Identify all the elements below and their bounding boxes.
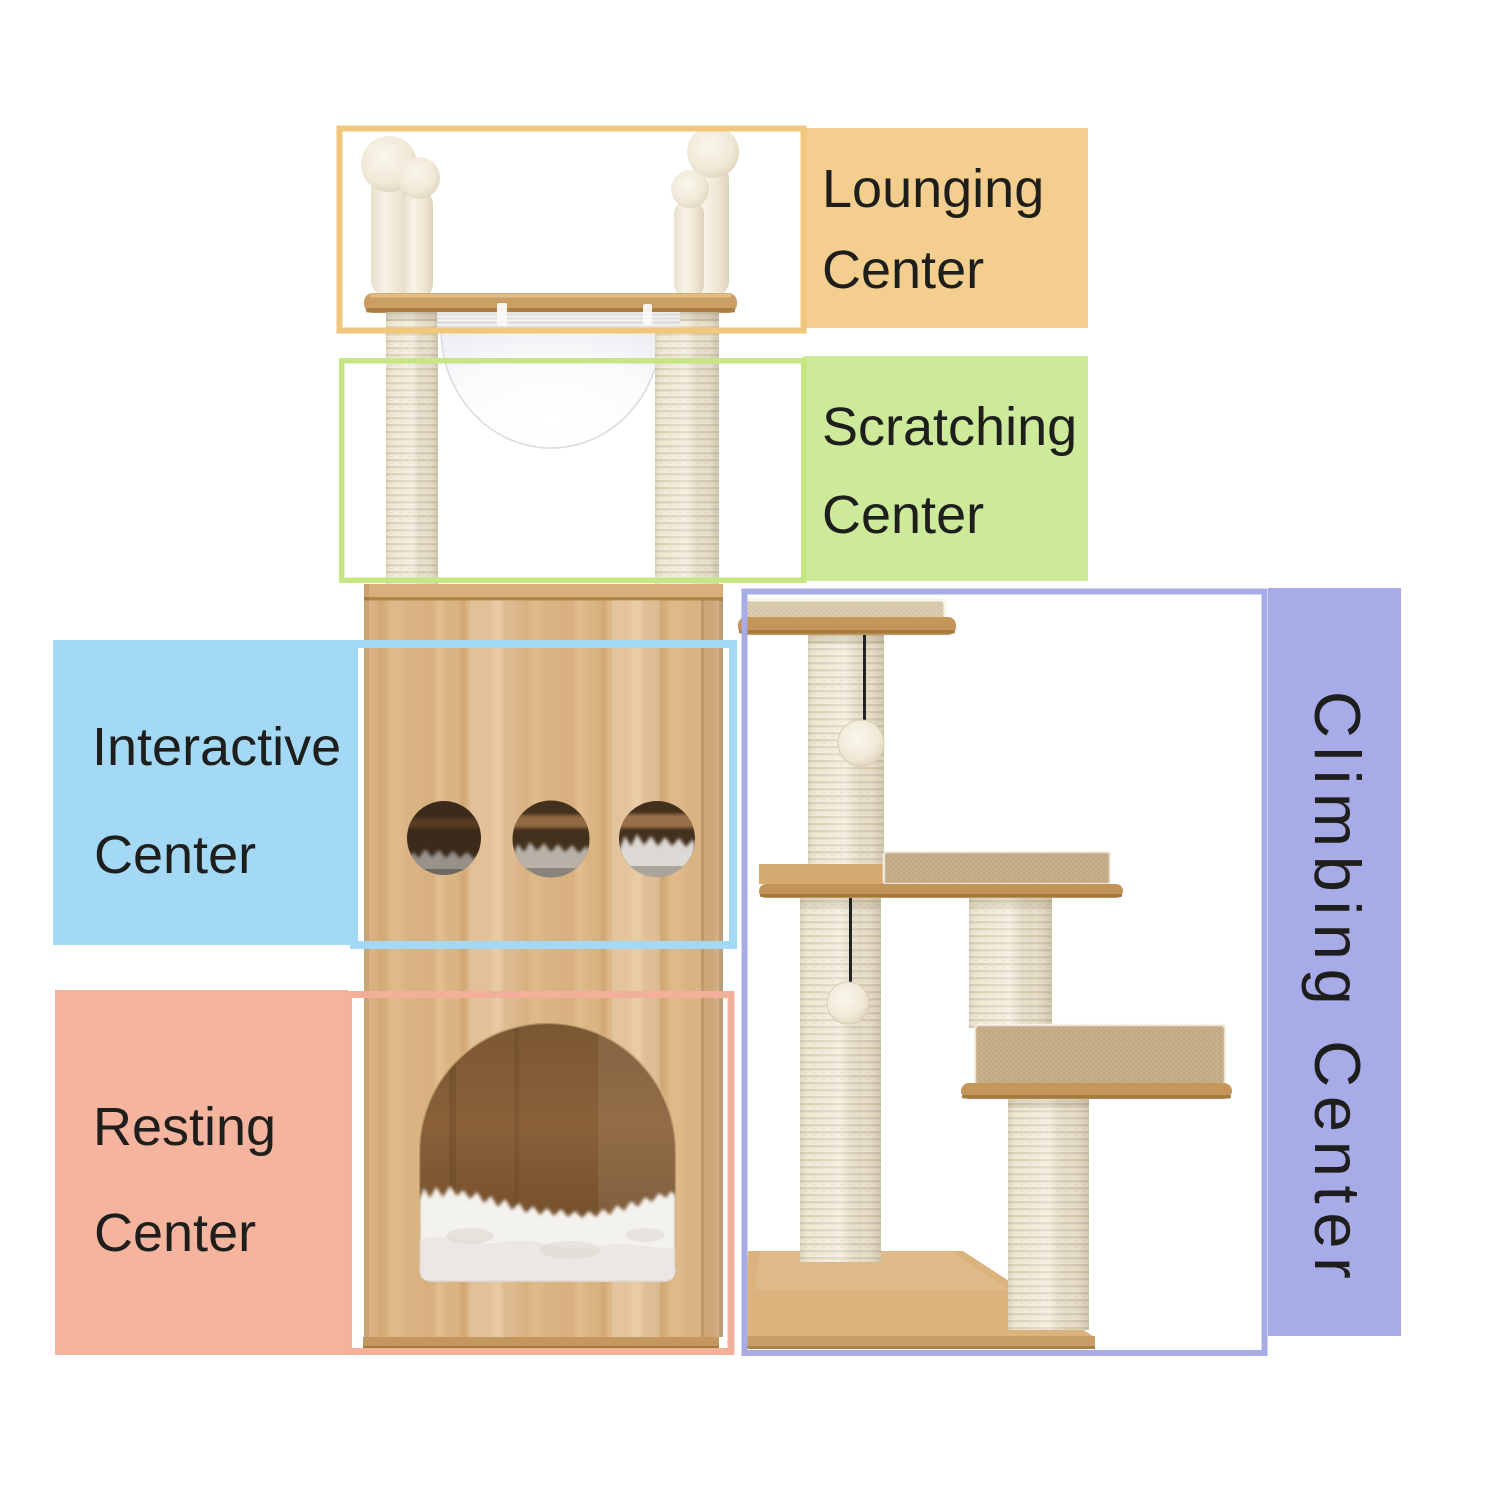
svg-text:Center: Center — [94, 1203, 256, 1263]
svg-text:Resting: Resting — [93, 1097, 276, 1157]
svg-text:Lounging: Lounging — [822, 159, 1044, 219]
svg-text:Center: Center — [94, 825, 256, 885]
svg-text:Center: Center — [822, 485, 984, 545]
svg-text:Interactive: Interactive — [92, 717, 341, 777]
svg-text:Center: Center — [822, 240, 984, 300]
svg-text:Scratching: Scratching — [822, 397, 1077, 457]
svg-text:Climbing Center: Climbing Center — [1301, 691, 1374, 1288]
